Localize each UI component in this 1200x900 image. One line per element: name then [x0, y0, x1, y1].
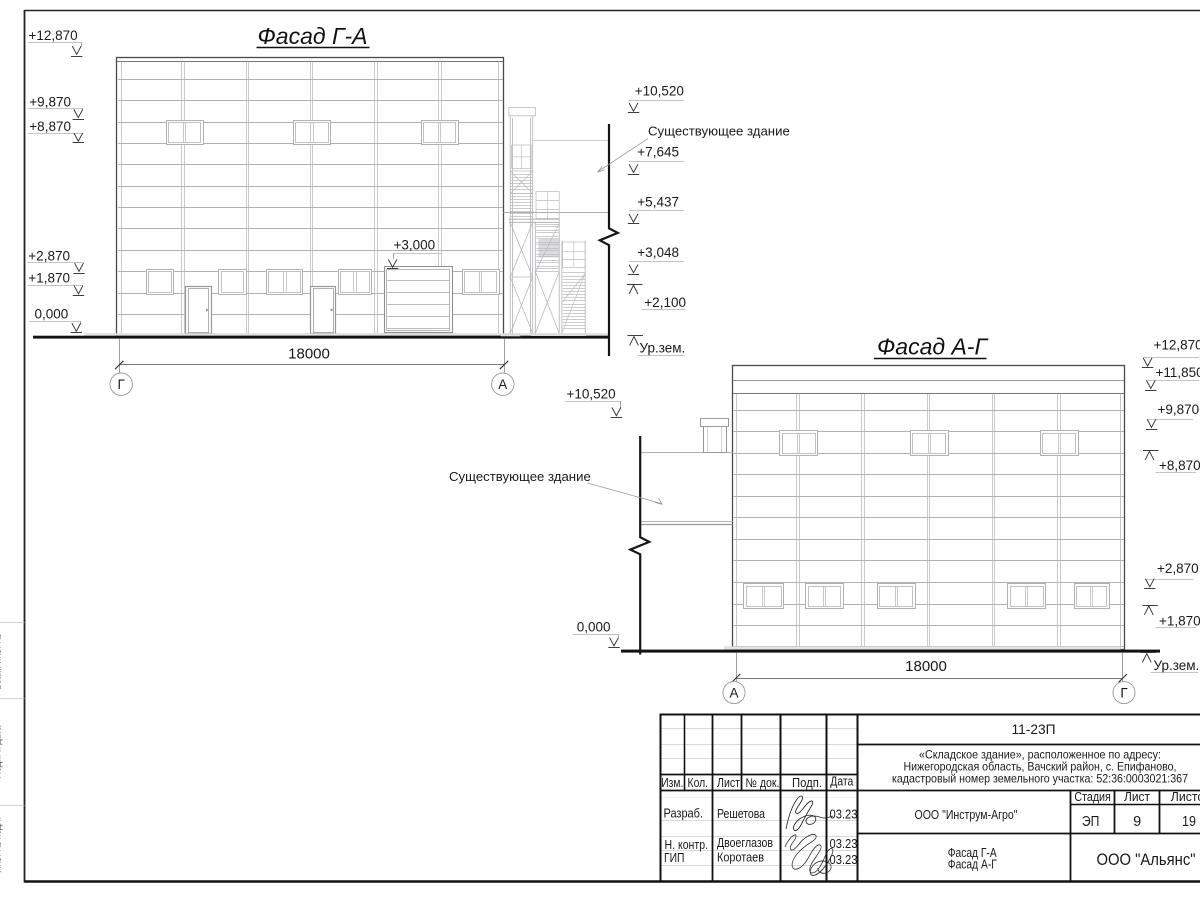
- svg-text:18000: 18000: [905, 658, 947, 675]
- svg-text:Коротаев: Коротаев: [717, 849, 764, 864]
- svg-text:+3,048: +3,048: [637, 245, 679, 260]
- svg-text:03.23: 03.23: [830, 806, 858, 821]
- svg-text:+5,437: +5,437: [637, 194, 679, 209]
- svg-text:ЭП: ЭП: [1082, 814, 1100, 830]
- svg-text:Существующее здание: Существующее здание: [449, 469, 591, 484]
- svg-text:+7,645: +7,645: [637, 145, 679, 160]
- svg-text:11-23П: 11-23П: [1012, 721, 1056, 737]
- svg-text:Дата: Дата: [830, 775, 853, 789]
- svg-text:9: 9: [1133, 814, 1141, 830]
- svg-text:Фасад А-Г: Фасад А-Г: [877, 333, 988, 359]
- svg-text:03.23: 03.23: [830, 852, 858, 867]
- svg-text:+11,850: +11,850: [1156, 365, 1200, 380]
- svg-text:Кол.: Кол.: [688, 776, 709, 790]
- svg-text:Ур.зем.: Ур.зем.: [1154, 658, 1200, 673]
- svg-text:+2,100: +2,100: [644, 295, 686, 310]
- svg-text:Фасад Г-А: Фасад Г-А: [258, 23, 368, 49]
- svg-text:ООО "Альянс": ООО "Альянс": [1097, 851, 1196, 869]
- svg-text:Г: Г: [1120, 685, 1128, 700]
- svg-text:Подп. и дата: Подп. и дата: [0, 725, 3, 778]
- svg-text:+2,870: +2,870: [1157, 561, 1199, 576]
- svg-text:19: 19: [1182, 814, 1196, 830]
- svg-text:+10,520: +10,520: [567, 387, 616, 402]
- svg-text:Подп.: Подп.: [792, 776, 822, 790]
- svg-text:Разраб.: Разраб.: [664, 805, 704, 820]
- svg-text:0,000: 0,000: [577, 619, 611, 634]
- svg-text:03.23: 03.23: [830, 836, 858, 851]
- svg-text:Взам. инв. №: Взам. инв. №: [0, 634, 3, 690]
- svg-text:+8,870: +8,870: [29, 119, 71, 134]
- svg-text:Г: Г: [118, 377, 126, 392]
- svg-text:Изм.: Изм.: [661, 776, 683, 790]
- svg-text:0,000: 0,000: [35, 307, 69, 322]
- svg-text:18000: 18000: [288, 346, 330, 363]
- svg-text:Существующее здание: Существующее здание: [648, 124, 790, 139]
- svg-text:+12,870: +12,870: [1154, 338, 1200, 353]
- svg-text:Лист: Лист: [717, 776, 740, 790]
- svg-text:Двоеглазов: Двоеглазов: [717, 835, 773, 850]
- svg-text:+2,870: +2,870: [28, 249, 70, 264]
- svg-text:№ док.: № док.: [746, 776, 780, 790]
- svg-text:+10,520: +10,520: [635, 84, 684, 99]
- svg-text:+9,870: +9,870: [29, 95, 71, 110]
- svg-text:Решетова: Решетова: [717, 806, 766, 821]
- svg-text:А: А: [729, 685, 738, 700]
- svg-text:Стадия: Стадия: [1074, 790, 1111, 804]
- svg-text:А: А: [498, 377, 507, 392]
- svg-text:ООО "Инструм-Агро": ООО "Инструм-Агро": [915, 807, 1018, 822]
- svg-text:Фасад А-Г: Фасад А-Г: [948, 858, 997, 872]
- svg-text:+8,870: +8,870: [1159, 458, 1200, 473]
- svg-text:Листов: Листов: [1171, 790, 1200, 804]
- svg-text:Инв. № подл.: Инв. № подл.: [0, 817, 3, 873]
- svg-text:+12,870: +12,870: [29, 28, 78, 43]
- svg-text:+9,870: +9,870: [1158, 402, 1200, 417]
- svg-text:ГИП: ГИП: [664, 850, 685, 865]
- svg-text:Ур.зем.: Ур.зем.: [640, 341, 686, 356]
- svg-text:+1,870: +1,870: [1159, 613, 1200, 628]
- svg-text:Лист: Лист: [1124, 790, 1150, 804]
- svg-text:+3,000: +3,000: [394, 238, 436, 253]
- svg-text:кадастровый номер земельного у: кадастровый номер земельного участка: 52…: [892, 772, 1188, 786]
- svg-text:+1,870: +1,870: [28, 271, 70, 286]
